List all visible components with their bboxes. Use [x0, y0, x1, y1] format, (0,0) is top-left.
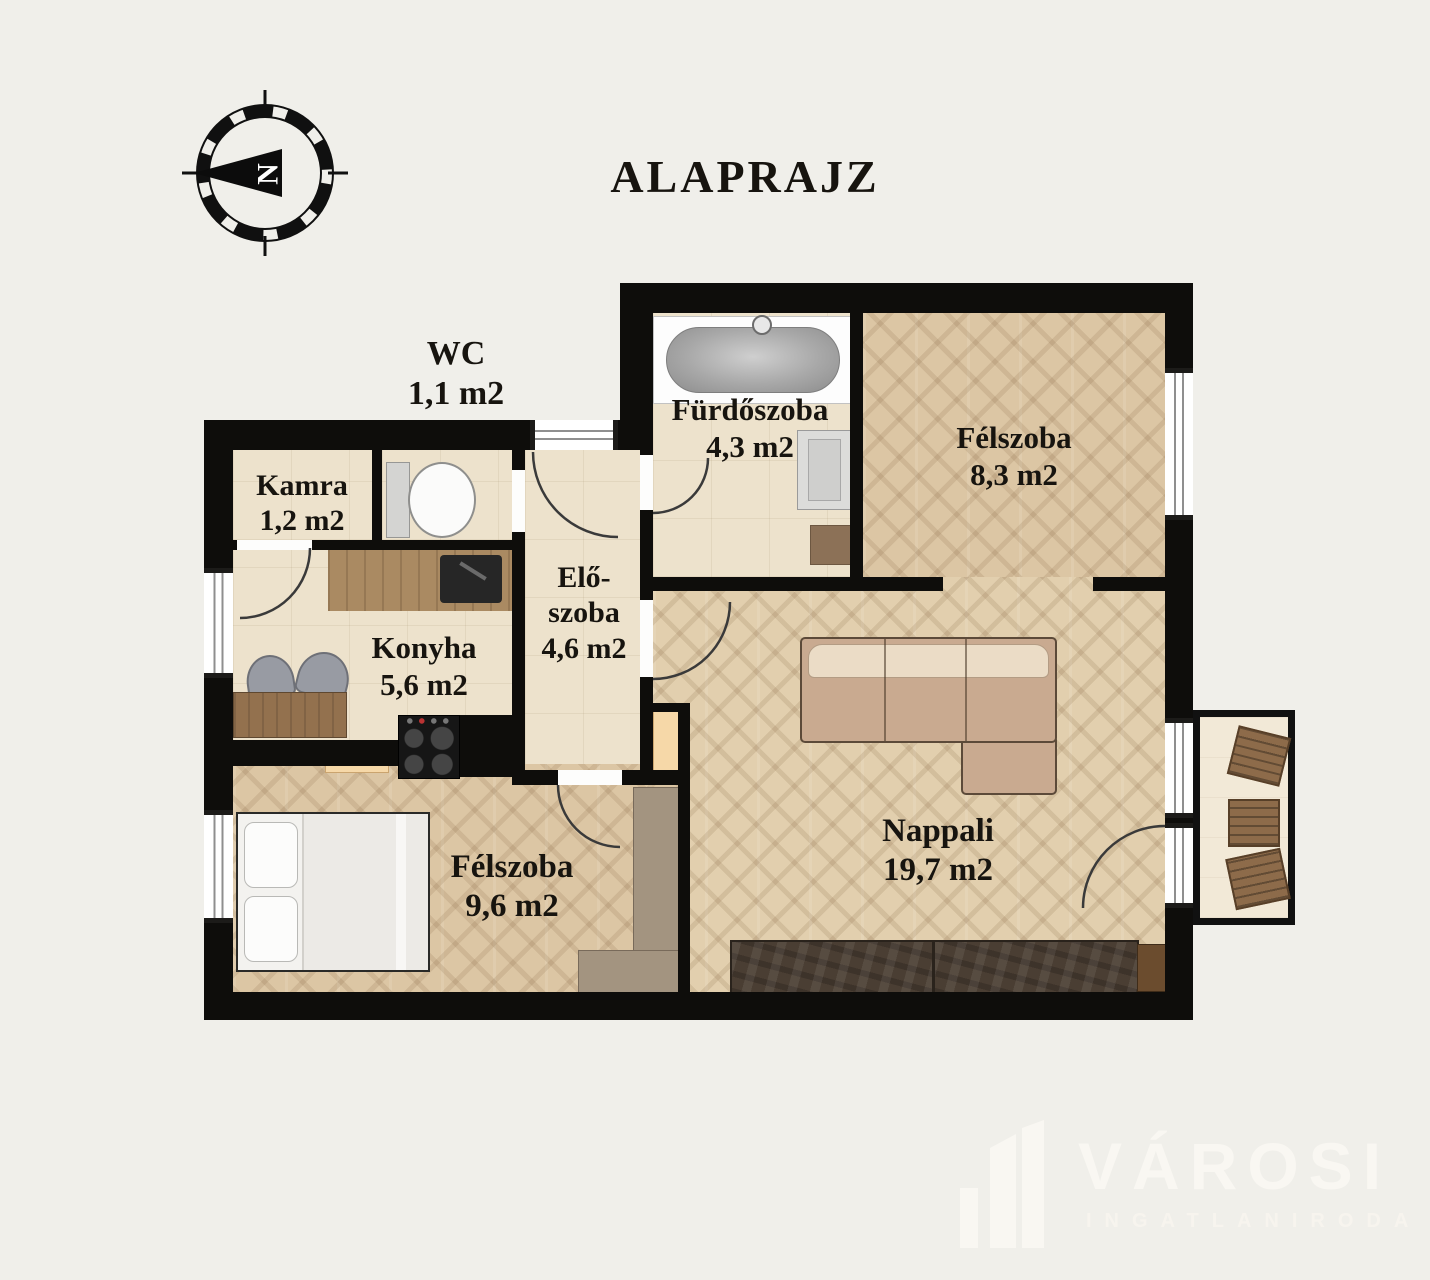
- wall: [630, 283, 1193, 313]
- sofa-chaise-icon: [961, 735, 1057, 795]
- room-label-felszoba-felso: Félszoba 8,3 m2: [956, 420, 1071, 493]
- room-label-eloszoba: Elő- szoba 4,6 m2: [542, 560, 627, 666]
- floor-plan-canvas: ALAPRAJZ N: [0, 0, 1430, 1280]
- window-nappali: [1165, 718, 1193, 818]
- stove-icon: [398, 715, 460, 779]
- room-area: 9,6 m2: [465, 887, 559, 926]
- room-label-kamra: Kamra 1,2 m2: [256, 468, 348, 539]
- toilet-icon: [386, 462, 410, 538]
- page-title: ALAPRAJZ: [610, 150, 879, 204]
- room-name: Elő-: [557, 560, 610, 595]
- dining-table-icon: [233, 692, 347, 738]
- compass-north-letter: N: [252, 163, 285, 185]
- room-area: 19,7 m2: [883, 851, 993, 890]
- wall: [372, 450, 382, 545]
- entrance-door: [530, 420, 618, 450]
- room-label-wc: WC 1,1 m2: [408, 334, 504, 414]
- wall: [204, 740, 398, 766]
- door-gap-felszoba: [558, 770, 622, 785]
- door-gap-kamra: [237, 540, 312, 550]
- door-gap-furdoszoba: [640, 455, 653, 510]
- room-label-furdoszoba: Fürdőszoba 4,3 m2: [672, 392, 829, 465]
- wall: [620, 283, 653, 450]
- watermark-subtitle: INGATLANIRODA: [1086, 1210, 1421, 1233]
- bed-icon: [236, 812, 430, 972]
- room-name: Nappali: [882, 812, 994, 851]
- compass-icon: N: [180, 88, 350, 258]
- room-label-konyha: Konyha 5,6 m2: [371, 630, 476, 703]
- room-name: Fürdőszoba: [672, 392, 829, 429]
- room-name: Félszoba: [956, 420, 1071, 457]
- door-gap-nappali: [640, 600, 653, 677]
- balcony-chair-icon: [1227, 725, 1291, 787]
- balcony-door: [1165, 823, 1193, 908]
- wall: [678, 703, 690, 992]
- room-area: 4,3 m2: [706, 429, 794, 466]
- room-area: 5,6 m2: [380, 667, 468, 704]
- room-label-nappali: Nappali 19,7 m2: [882, 812, 994, 890]
- bath-mat-icon: [810, 525, 852, 565]
- sofa-icon: [800, 637, 1057, 743]
- room-area: 1,2 m2: [259, 503, 344, 538]
- balcony-chair-icon: [1225, 848, 1291, 911]
- wall: [1093, 577, 1165, 591]
- window-konyha: [204, 568, 233, 678]
- room-name: Kamra: [256, 468, 348, 503]
- kitchen-counter-icon: [328, 547, 512, 611]
- room-name: szoba: [548, 595, 620, 630]
- window-felszoba-also: [204, 810, 233, 923]
- brand-logo-icon: [958, 1120, 1048, 1255]
- wall: [458, 715, 512, 777]
- door-gap-wc: [512, 470, 525, 532]
- room-label-felszoba-also: Félszoba 9,6 m2: [451, 848, 574, 926]
- room-area: 4,6 m2: [542, 631, 627, 666]
- page-title-text: ALAPRAJZ: [610, 150, 879, 204]
- bathtub-icon: [653, 316, 852, 404]
- balcony-table-icon: [1228, 799, 1280, 847]
- wall: [640, 577, 943, 591]
- room-name: WC: [427, 334, 486, 374]
- wall: [645, 703, 690, 712]
- tv-cabinet-icon: [933, 940, 1139, 996]
- wardrobe-icon: [578, 950, 680, 994]
- balcony: [1193, 710, 1295, 925]
- kitchen-sink-icon: [440, 555, 502, 603]
- side-table-icon: [1137, 944, 1167, 992]
- window-felszoba-felso: [1165, 368, 1193, 520]
- room-name: Konyha: [371, 630, 476, 667]
- room-name: Félszoba: [451, 848, 574, 887]
- cabinet-icon: [653, 711, 680, 775]
- toilet-bowl-icon: [408, 462, 476, 538]
- tv-cabinet-icon: [730, 940, 934, 996]
- wall: [204, 992, 1193, 1020]
- room-area: 8,3 m2: [970, 457, 1058, 494]
- wall: [204, 420, 233, 1020]
- wall: [850, 313, 863, 591]
- room-area: 1,1 m2: [408, 374, 504, 414]
- watermark-brand: VÁROSI: [1078, 1128, 1391, 1204]
